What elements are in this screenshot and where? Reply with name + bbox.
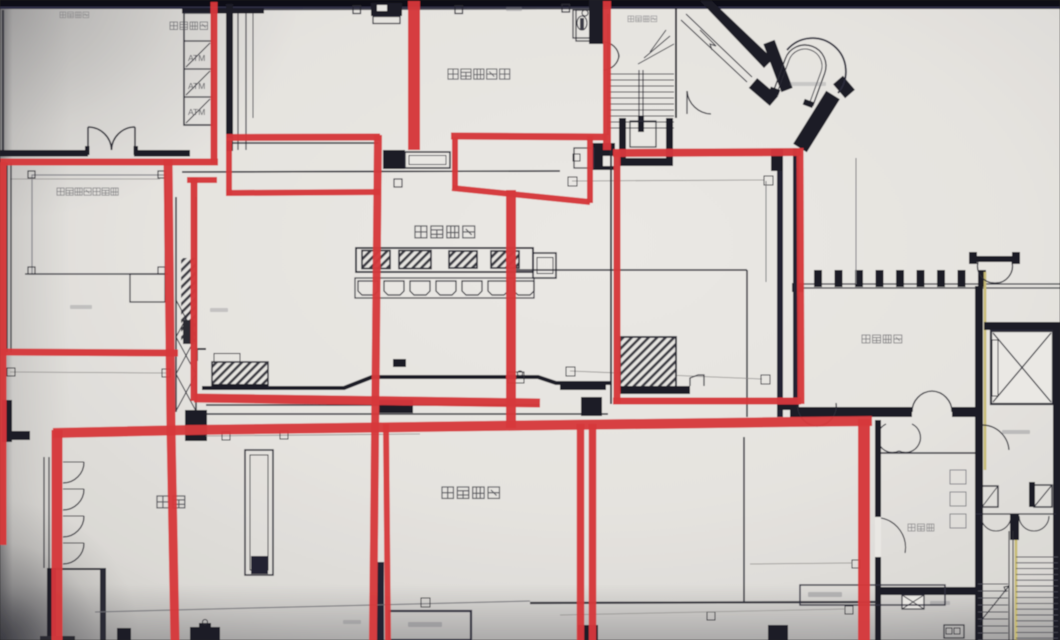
svg-text:ATM: ATM (188, 53, 205, 63)
svg-text:ATM: ATM (188, 81, 205, 91)
svg-text:ATM: ATM (188, 107, 205, 117)
